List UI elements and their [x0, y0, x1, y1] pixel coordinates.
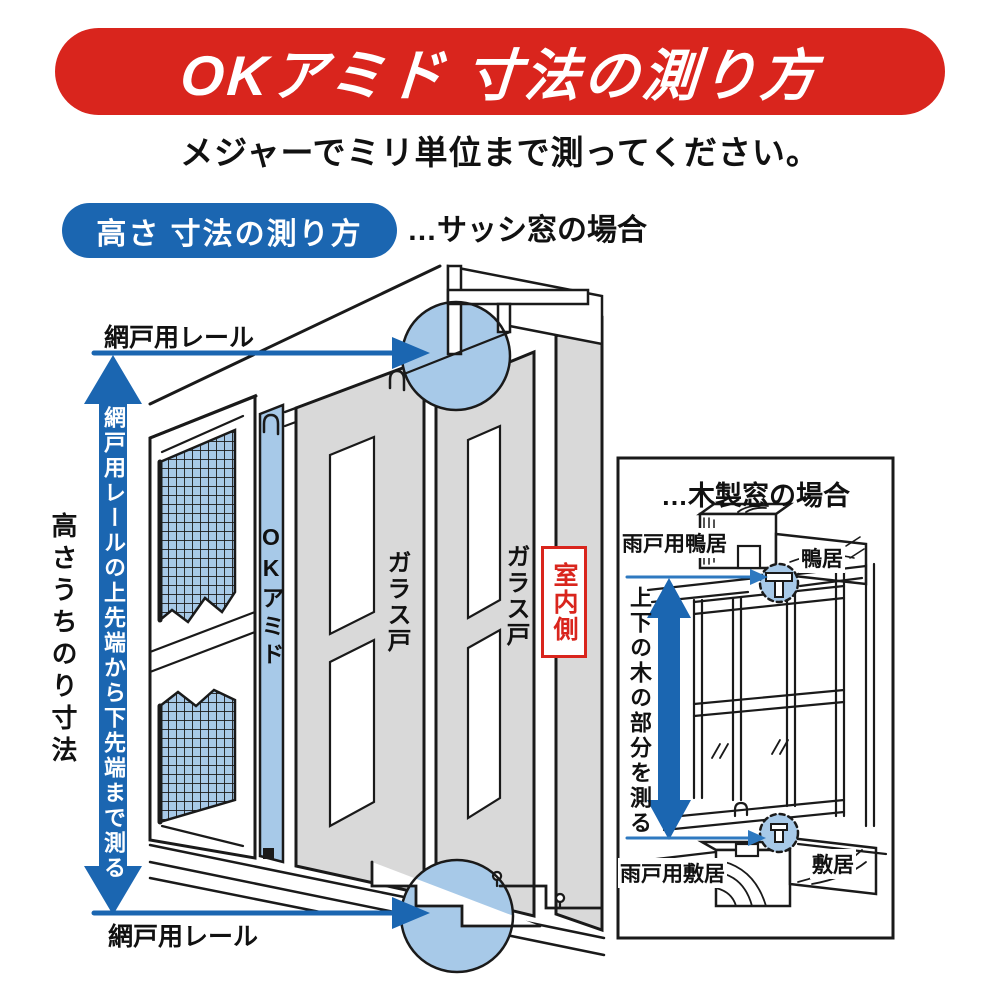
- indoor-side-label: 室内側: [546, 562, 582, 643]
- shutter-lintel-label: 雨戸用鴨居: [620, 528, 729, 558]
- title-banner: OKアミド 寸法の測り方: [55, 28, 945, 115]
- rail-label-top: 網戸用レール: [104, 318, 254, 354]
- lintel-detail-circle: [760, 564, 798, 602]
- wooden-window-title: …木製窓の場合: [618, 474, 893, 513]
- height-dimension-label: 高さうちのり寸法: [48, 512, 78, 812]
- page: OKアミド 寸法の測り方 メジャーでミリ単位まで測ってください。 高さ 寸法の測…: [0, 0, 1000, 1000]
- sill-detail-circle: [760, 814, 798, 852]
- screen-mesh-top: [160, 430, 235, 622]
- sash-case-label: …サッシ窓の場合: [407, 203, 647, 258]
- product-label: OKアミド: [257, 524, 285, 734]
- subtitle: メジャーでミリ単位まで測ってください。: [0, 126, 1000, 174]
- wood-measure-note: 上下の木の部分を測る: [626, 586, 652, 844]
- glass-door-label-1: ガラス戸: [382, 550, 410, 660]
- sill-label: 敷居: [810, 849, 856, 879]
- rail-label-bottom: 網戸用レール: [108, 917, 258, 953]
- page-title: OKアミド 寸法の測り方: [178, 31, 822, 112]
- indoor-side-box: 室内側: [541, 546, 587, 658]
- lintel-label: 鴨居: [799, 543, 845, 573]
- glass-door-label-2: ガラス戸: [501, 544, 529, 654]
- height-section-badge-label: 高さ 寸法の測り方: [96, 209, 362, 253]
- shutter-sill-label: 雨戸用敷居: [618, 858, 727, 888]
- screen-mesh-bottom: [160, 690, 235, 822]
- measure-note: 網戸用レールの上先端から下先端まで測る: [96, 406, 130, 876]
- height-section-badge: 高さ 寸法の測り方: [62, 203, 397, 258]
